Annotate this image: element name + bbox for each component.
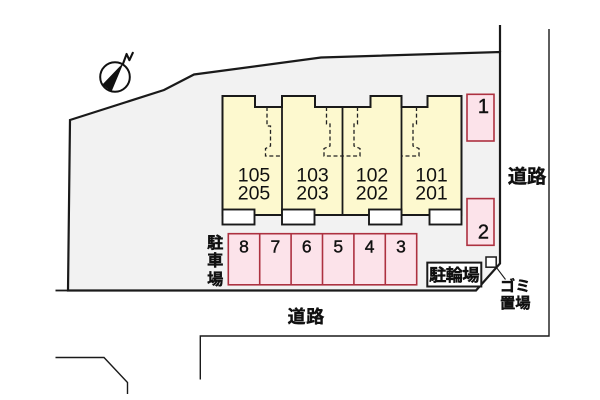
svg-text:3: 3 [396, 236, 406, 256]
svg-text:2: 2 [478, 222, 489, 244]
svg-text:4: 4 [365, 236, 375, 256]
svg-text:202: 202 [356, 183, 389, 205]
svg-text:5: 5 [333, 236, 343, 256]
svg-text:201: 201 [415, 183, 448, 205]
svg-text:1: 1 [478, 96, 489, 118]
svg-text:7: 7 [271, 236, 281, 256]
svg-text:205: 205 [238, 183, 271, 205]
svg-text:8: 8 [239, 236, 249, 256]
svg-text:6: 6 [302, 236, 312, 256]
svg-text:203: 203 [296, 183, 329, 205]
